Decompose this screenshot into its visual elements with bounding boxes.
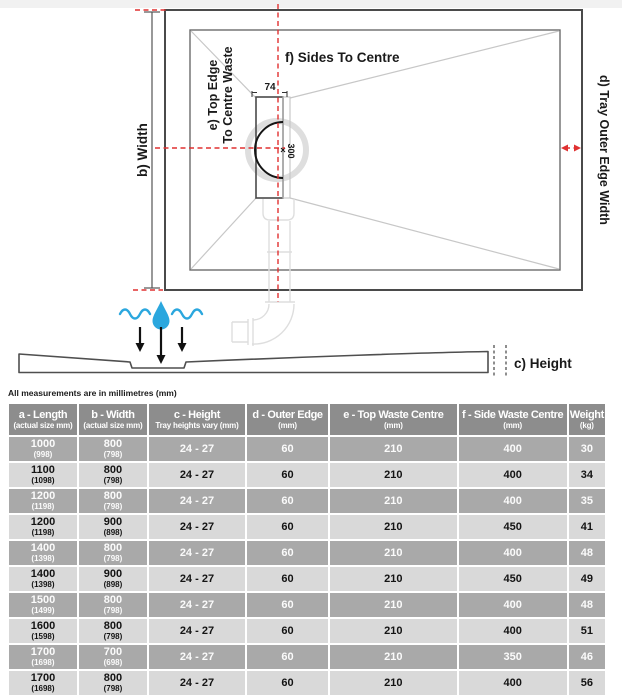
table-row: 1700(1698) 700(698) 24 - 27 60 210 350 4… [8,644,606,670]
label-width: b) Width [135,123,150,177]
table-row: 1500(1499) 800(798) 24 - 27 60 210 400 4… [8,592,606,618]
label-height: c) Height [514,356,572,371]
cell-width: 800(798) [78,592,148,618]
cell-side-waste-centre: 450 [458,566,568,592]
tray-side-profile [19,352,488,373]
table-row: 1400(1398) 800(798) 24 - 27 60 210 400 4… [8,540,606,566]
cell-height: 24 - 27 [148,436,246,462]
wave-left-icon [120,310,150,319]
cell-side-waste-centre: 400 [458,618,568,644]
cell-top-waste-centre: 210 [329,618,458,644]
column-header: a - Length (actual size mm) [8,403,78,436]
label-tray-outer-edge-width: d) Tray Outer Edge Width [597,75,611,225]
cell-top-waste-centre: 210 [329,488,458,514]
cell-height: 24 - 27 [148,540,246,566]
spec-table-body: 1000(998) 800(798) 24 - 27 60 210 400 30… [8,436,606,696]
cell-weight: 30 [568,436,606,462]
cell-height: 24 - 27 [148,514,246,540]
table-row: 1200(1198) 900(898) 24 - 27 60 210 450 4… [8,514,606,540]
cell-height: 24 - 27 [148,566,246,592]
column-header: Weight (kg) [568,403,606,436]
cell-weight: 51 [568,618,606,644]
cell-weight: 35 [568,488,606,514]
table-row: 1100(1098) 800(798) 24 - 27 60 210 400 3… [8,462,606,488]
cell-outer-edge: 60 [246,592,329,618]
label-sides-to-centre: f) Sides To Centre [285,50,400,65]
cell-top-waste-centre: 210 [329,566,458,592]
column-header: e - Top Waste Centre (mm) [329,403,458,436]
height-dimension-bracket [494,345,506,377]
cell-width: 800(798) [78,436,148,462]
cell-side-waste-centre: 400 [458,436,568,462]
cell-width: 800(798) [78,488,148,514]
measurement-note: All measurements are in millimetres (mm) [8,388,177,398]
cell-length: 1600(1598) [8,618,78,644]
cell-top-waste-centre: 210 [329,436,458,462]
cell-outer-edge: 60 [246,670,329,696]
cell-length: 1700(1698) [8,670,78,696]
cell-weight: 48 [568,540,606,566]
top-strip [0,0,622,8]
cell-weight: 48 [568,592,606,618]
table-row: 1000(998) 800(798) 24 - 27 60 210 400 30 [8,436,606,462]
cell-width: 900(898) [78,514,148,540]
cell-width: 800(798) [78,670,148,696]
table-row: 1600(1598) 800(798) 24 - 27 60 210 400 5… [8,618,606,644]
dim-waste-length: 300 [286,143,296,158]
table-row: 1400(1398) 900(898) 24 - 27 60 210 450 4… [8,566,606,592]
water-drop-icon [153,301,170,330]
column-header: d - Outer Edge (mm) [246,403,329,436]
cell-outer-edge: 60 [246,436,329,462]
column-header: c - Height Tray heights vary (mm) [148,403,246,436]
cell-height: 24 - 27 [148,670,246,696]
cell-side-waste-centre: 400 [458,592,568,618]
cell-weight: 41 [568,514,606,540]
column-header: b - Width (actual size mm) [78,403,148,436]
cell-width: 900(898) [78,566,148,592]
label-top-edge-line2: To Centre Waste [221,46,235,143]
cell-side-waste-centre: 450 [458,514,568,540]
cell-weight: 49 [568,566,606,592]
flow-arrows-icon [136,327,187,364]
cell-width: 800(798) [78,618,148,644]
cell-side-waste-centre: 400 [458,488,568,514]
cell-outer-edge: 60 [246,644,329,670]
cell-top-waste-centre: 210 [329,670,458,696]
cell-width: 700(698) [78,644,148,670]
cell-outer-edge: 60 [246,514,329,540]
label-top-edge-line1: e) Top Edge [206,60,220,131]
cell-top-waste-centre: 210 [329,462,458,488]
table-row: 1700(1698) 800(798) 24 - 27 60 210 400 5… [8,670,606,696]
cell-top-waste-centre: 210 [329,592,458,618]
cell-weight: 46 [568,644,606,670]
cell-side-waste-centre: 400 [458,540,568,566]
cell-top-waste-centre: 210 [329,644,458,670]
dim-waste-width: 74 [264,82,276,93]
cell-weight: 34 [568,462,606,488]
water-flow-icon [120,301,202,364]
cell-top-waste-centre: 210 [329,514,458,540]
cell-height: 24 - 27 [148,488,246,514]
cell-outer-edge: 60 [246,462,329,488]
cell-height: 24 - 27 [148,644,246,670]
cell-side-waste-centre: 350 [458,644,568,670]
cell-length: 1400(1398) [8,540,78,566]
spec-table-header-row: a - Length (actual size mm) b - Width (a… [8,403,606,436]
column-header: f - Side Waste Centre (mm) [458,403,568,436]
cell-weight: 56 [568,670,606,696]
cell-side-waste-centre: 400 [458,462,568,488]
spec-table: a - Length (actual size mm) b - Width (a… [7,402,607,697]
cell-length: 1500(1499) [8,592,78,618]
table-row: 1200(1198) 800(798) 24 - 27 60 210 400 3… [8,488,606,514]
tray-dimension-diagram: b) Width e) Top Edge To Centre Waste f) … [0,0,622,400]
cell-length: 1100(1098) [8,462,78,488]
cell-length: 1700(1698) [8,644,78,670]
cell-length: 1400(1398) [8,566,78,592]
cell-outer-edge: 60 [246,540,329,566]
cell-outer-edge: 60 [246,488,329,514]
cell-length: 1200(1198) [8,488,78,514]
pipe-elbow-icon [232,302,295,346]
cell-width: 800(798) [78,540,148,566]
cell-top-waste-centre: 210 [329,540,458,566]
cell-length: 1000(998) [8,436,78,462]
cell-height: 24 - 27 [148,618,246,644]
cell-length: 1200(1198) [8,514,78,540]
cell-width: 800(798) [78,462,148,488]
cell-side-waste-centre: 400 [458,670,568,696]
cell-outer-edge: 60 [246,566,329,592]
cell-height: 24 - 27 [148,592,246,618]
wave-right-icon [172,310,202,319]
cell-outer-edge: 60 [246,618,329,644]
cell-height: 24 - 27 [148,462,246,488]
